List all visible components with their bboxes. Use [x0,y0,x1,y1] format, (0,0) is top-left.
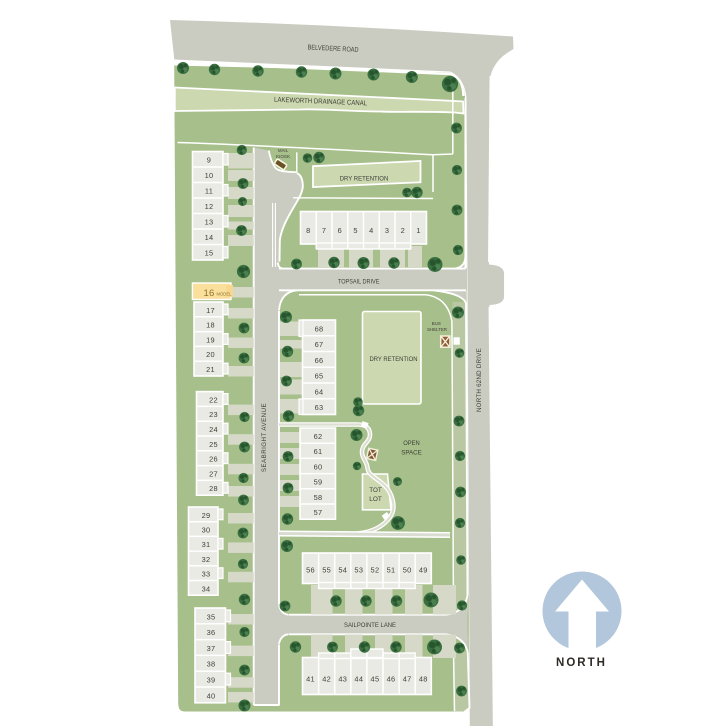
svg-text:TOT: TOT [369,487,382,494]
svg-text:34: 34 [202,584,211,593]
svg-text:KIOSK: KIOSK [276,154,290,159]
svg-text:62: 62 [314,432,323,441]
svg-text:32: 32 [202,555,211,564]
svg-text:48: 48 [419,675,428,684]
svg-text:21: 21 [206,365,215,374]
svg-text:13: 13 [205,218,214,227]
svg-text:1: 1 [416,226,420,235]
svg-text:20: 20 [206,350,215,359]
svg-text:27: 27 [209,469,218,478]
svg-text:60: 60 [314,462,323,471]
svg-text:SHELTER: SHELTER [427,327,448,332]
svg-text:17: 17 [206,306,215,315]
svg-text:12: 12 [205,202,214,211]
svg-text:4: 4 [369,226,373,235]
svg-text:58: 58 [314,493,323,502]
svg-text:LOT: LOT [369,496,382,503]
svg-text:35: 35 [207,612,216,621]
svg-text:42: 42 [322,675,331,684]
svg-text:DRY RETENTION: DRY RETENTION [370,356,418,363]
svg-text:61: 61 [314,447,323,456]
svg-text:64: 64 [315,387,324,396]
svg-text:68: 68 [315,324,324,333]
svg-text:15: 15 [205,249,214,258]
svg-text:BUS: BUS [432,321,441,326]
svg-text:5: 5 [353,226,357,235]
svg-text:51: 51 [387,566,396,575]
svg-text:55: 55 [322,566,331,575]
svg-text:52: 52 [371,566,380,575]
svg-text:19: 19 [206,335,215,344]
svg-text:3: 3 [385,226,389,235]
svg-text:OPEN: OPEN [403,440,420,447]
svg-text:NORTH 62ND DRIVE: NORTH 62ND DRIVE [476,348,483,412]
svg-text:46: 46 [387,675,396,684]
svg-text:57: 57 [314,508,323,517]
svg-text:8: 8 [306,226,310,235]
svg-text:41: 41 [306,675,315,684]
svg-text:67: 67 [315,340,324,349]
svg-text:65: 65 [315,372,324,381]
svg-text:18: 18 [206,321,215,330]
svg-text:24: 24 [209,425,218,434]
svg-text:38: 38 [207,660,216,669]
svg-text:50: 50 [403,566,412,575]
svg-text:36: 36 [207,628,216,637]
svg-text:39: 39 [207,676,216,685]
svg-text:43: 43 [338,675,347,684]
svg-text:7: 7 [322,226,326,235]
svg-text:26: 26 [209,455,218,464]
svg-text:16: 16 [204,288,215,299]
svg-text:TOPSAIL DRIVE: TOPSAIL DRIVE [338,279,380,286]
svg-text:33: 33 [202,570,211,579]
svg-text:SEABRIGHT AVENUE: SEABRIGHT AVENUE [261,403,268,472]
svg-text:31: 31 [202,540,211,549]
svg-text:53: 53 [354,566,363,575]
svg-text:DRY RETENTION: DRY RETENTION [340,175,389,182]
svg-text:63: 63 [315,403,324,412]
svg-text:MAIL: MAIL [278,148,289,153]
svg-text:10: 10 [205,171,214,180]
svg-text:66: 66 [315,356,324,365]
svg-text:49: 49 [419,566,428,575]
svg-text:29: 29 [202,511,211,520]
svg-text:6: 6 [338,226,342,235]
svg-text:25: 25 [209,440,218,449]
svg-text:45: 45 [371,675,380,684]
svg-text:23: 23 [209,410,218,419]
svg-text:59: 59 [314,478,323,487]
svg-text:54: 54 [338,566,347,575]
svg-text:22: 22 [209,395,218,404]
svg-text:SAILPOINTE LANE: SAILPOINTE LANE [344,622,396,629]
svg-text:56: 56 [306,566,315,575]
svg-text:44: 44 [354,675,363,684]
svg-text:11: 11 [205,187,213,196]
svg-text:40: 40 [207,691,216,700]
svg-text:SPACE: SPACE [401,449,422,456]
svg-text:14: 14 [205,233,214,242]
svg-text:47: 47 [403,675,412,684]
svg-text:28: 28 [209,484,218,493]
svg-text:9: 9 [207,156,211,165]
svg-text:MODEL: MODEL [217,291,233,296]
svg-text:30: 30 [202,525,211,534]
svg-text:NORTH: NORTH [556,657,607,669]
svg-text:2: 2 [401,226,405,235]
svg-text:37: 37 [207,644,216,653]
